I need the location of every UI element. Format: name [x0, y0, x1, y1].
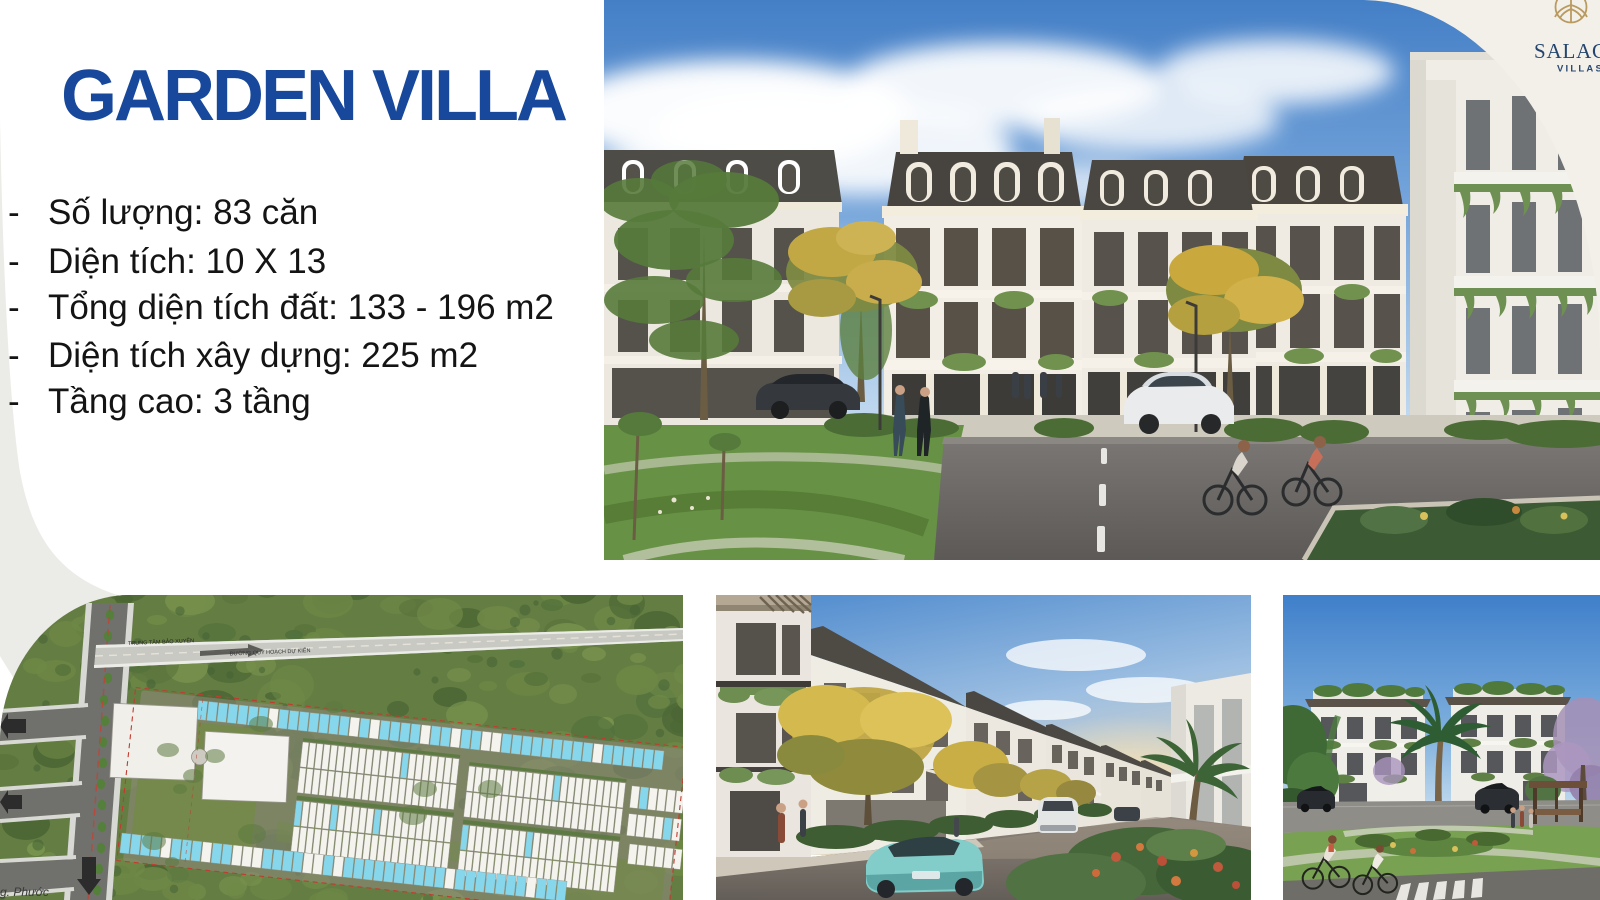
- svg-text:VILLAS: VILLAS: [1557, 64, 1600, 75]
- svg-text:SALACIA: SALACIA: [1534, 39, 1600, 63]
